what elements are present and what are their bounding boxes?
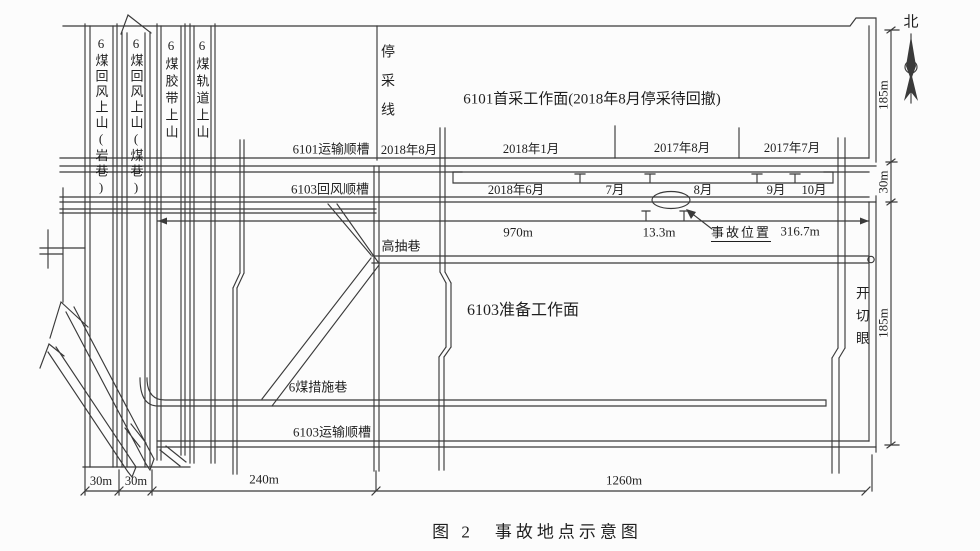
high-drainage-label: 高抽巷	[381, 240, 420, 253]
face-6103-label: 6103准备工作面	[467, 303, 579, 319]
cut-hole-label: 开切眼	[854, 286, 868, 354]
accident-ellipse	[652, 192, 690, 209]
uphill-belt-label: 6煤胶带上山	[165, 38, 178, 142]
date-2017-08: 2017年8月	[654, 142, 710, 155]
high-drainage-branch	[262, 204, 379, 406]
bottom-dimension-line	[81, 467, 870, 495]
date-2017-07: 2017年7月	[764, 142, 820, 155]
north-label: 北	[903, 16, 918, 31]
transport-6101-label: 6101运输顺槽	[293, 144, 370, 157]
accident-location-label: 事故位置	[711, 226, 771, 242]
uphill-track-label: 6煤轨道上山	[196, 38, 209, 142]
dim-185m-top: 185m	[877, 80, 890, 110]
months-scale	[453, 172, 833, 183]
month-07: 7月	[606, 184, 625, 197]
dim-1260m: 1260m	[606, 474, 642, 487]
diagram-linework	[0, 0, 980, 551]
month-2018-06: 2018年6月	[488, 184, 544, 197]
dim-30m-right: 30m	[877, 170, 890, 193]
return-6103-label: 6103回风顺槽	[291, 183, 369, 196]
month-09: 9月	[767, 184, 786, 197]
date-2018-08: 2018年8月	[381, 144, 437, 157]
dim-316-7m: 316.7m	[780, 225, 819, 238]
measure-roadway-label: 6煤措施巷	[289, 381, 348, 394]
month-08: 8月	[694, 184, 713, 197]
dim-30m-1: 30m	[90, 475, 112, 488]
stop-line-label: 停采线	[379, 44, 393, 131]
figure-caption: 图 2 事故地点示意图	[432, 524, 642, 541]
face-6101-label: 6101首采工作面(2018年8月停采待回撤)	[463, 93, 721, 108]
date-2018-01: 2018年1月	[503, 143, 559, 156]
month-10: 10月	[801, 184, 826, 197]
transport-6103-label: 6103运输顺槽	[293, 426, 371, 439]
dim-30m-2: 30m	[125, 475, 147, 488]
dim-240m: 240m	[249, 473, 279, 486]
uphill-return-rock-label: 6煤回风上山(岩巷)	[95, 36, 108, 197]
measure-roadway-line	[140, 378, 826, 406]
accident-location-diagram: 北 6101首采工作面(2018年8月停采待回撤) 停采线 6101运输顺槽 2…	[0, 0, 980, 551]
uphill-return-coal-label: 6煤回风上山(煤巷)	[130, 36, 143, 197]
dim-185m-bottom: 185m	[877, 308, 890, 338]
dim-970m: 970m	[503, 226, 533, 239]
north-compass-icon	[904, 34, 918, 103]
dim-13-3m: 13.3m	[643, 226, 676, 239]
